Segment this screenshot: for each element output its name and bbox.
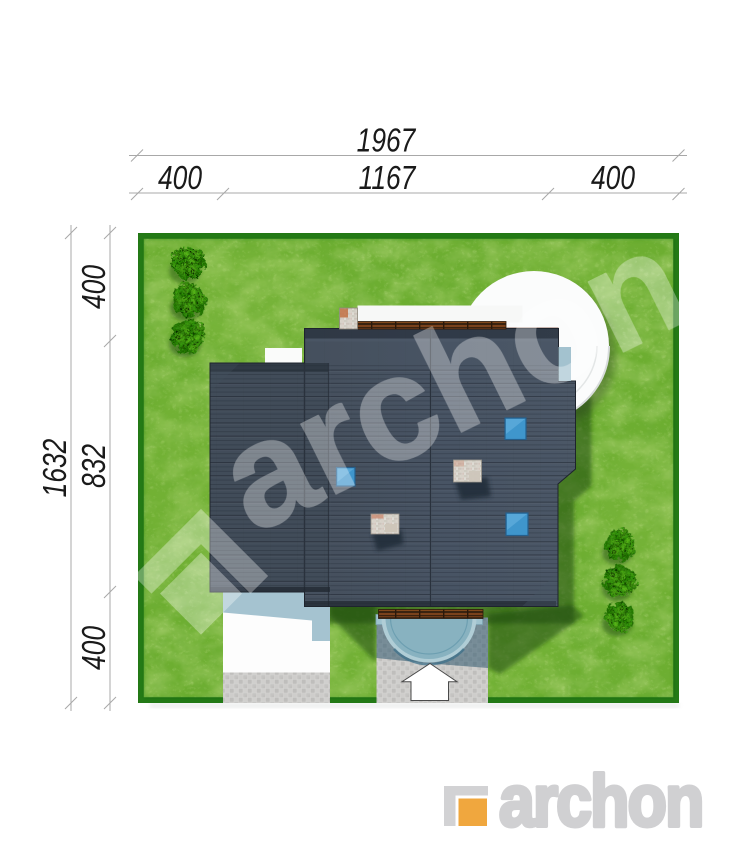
svg-text:1632: 1632	[37, 438, 73, 497]
svg-text:1967: 1967	[357, 123, 417, 159]
svg-text:1167: 1167	[359, 160, 417, 196]
svg-text:400: 400	[76, 626, 112, 670]
svg-text:400: 400	[591, 160, 635, 196]
svg-text:832: 832	[76, 444, 112, 488]
svg-text:400: 400	[158, 160, 202, 196]
svg-text:400: 400	[76, 265, 112, 309]
svg-text:archon: archon	[499, 760, 703, 842]
